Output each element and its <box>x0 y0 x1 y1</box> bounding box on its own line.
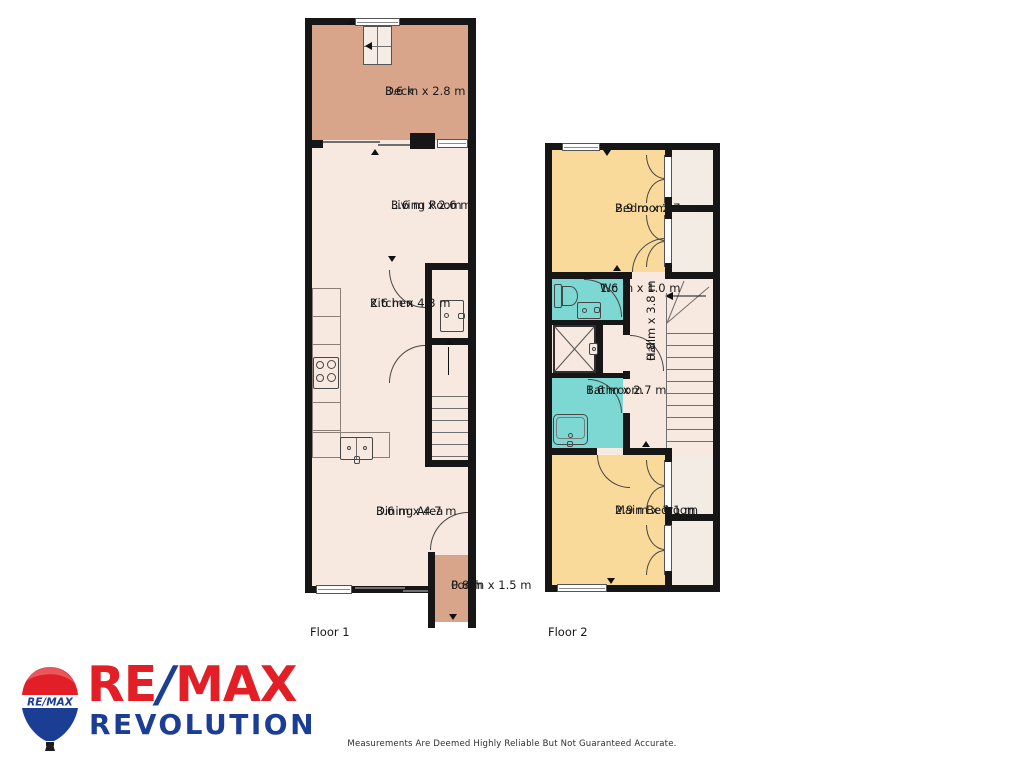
tick-mark <box>449 614 457 620</box>
room-dims: 2.9 m x 3.1 m <box>615 504 695 518</box>
wall <box>545 143 552 592</box>
wall-porch-left <box>428 552 435 628</box>
tick-mark <box>613 265 621 271</box>
sink-drain <box>347 446 351 450</box>
wall <box>545 272 632 279</box>
wall-chimney <box>410 133 435 149</box>
wall <box>665 571 672 585</box>
closet <box>672 212 713 272</box>
sliding-door <box>403 590 428 592</box>
room-dims: 2.6 m x 4.3 m <box>370 297 450 311</box>
stairs-treads <box>432 385 468 460</box>
room-dims: 0.8 m x 1.5 m <box>451 579 531 593</box>
tick-mark <box>347 19 355 25</box>
svg-text:RE/MAX: RE/MAX <box>27 697 74 709</box>
wall <box>665 150 672 157</box>
toilet-tank <box>554 284 562 308</box>
stove-burner <box>327 373 336 382</box>
closet-door-panel <box>664 215 672 267</box>
room-dims: 0.8 m x 3.8 m <box>645 281 659 361</box>
wall <box>552 320 623 325</box>
sink-drain <box>363 446 367 450</box>
brand-re: RE <box>87 656 156 713</box>
brand-max: MAX <box>175 656 296 713</box>
closet-door-panel <box>664 525 672 575</box>
tick-mark <box>388 256 396 262</box>
window <box>437 139 468 148</box>
stove-burner <box>327 360 336 369</box>
floor-2-label: Floor 2 <box>548 625 588 639</box>
wc-sink-drain <box>582 308 587 313</box>
floor-1-label: Floor 1 <box>310 625 350 639</box>
wall <box>666 272 713 279</box>
stair-direction-arrow <box>365 42 372 50</box>
sliding-door <box>355 587 405 589</box>
water-heater-dial <box>444 313 449 318</box>
stairs-treads <box>667 322 713 448</box>
stair-edge <box>666 293 667 448</box>
room-dims: 3.6 m x 2.6 m <box>391 199 471 213</box>
sliding-door <box>323 141 380 143</box>
wall <box>665 263 672 279</box>
wall <box>312 140 323 148</box>
closet <box>672 150 713 205</box>
wc-sink-tap <box>594 307 600 313</box>
closet-door-panel <box>664 155 672 203</box>
room-dims: 3.6 m x 4.7 m <box>376 505 456 519</box>
counter-line <box>313 402 340 403</box>
room-dims: 1.6 m x 1.0 m <box>600 282 680 296</box>
disclaimer-text: Measurements Are Deemed Highly Reliable … <box>0 739 1024 749</box>
wall <box>425 263 476 270</box>
wall <box>425 460 476 467</box>
water-heater-latch <box>458 313 465 319</box>
window <box>557 584 607 592</box>
room-dims: 1.6 m x 2.7 m <box>586 384 666 398</box>
shower-faucet-dial <box>592 347 596 351</box>
stove-burner <box>316 361 324 369</box>
wall <box>665 448 672 462</box>
toilet-bowl <box>562 286 578 306</box>
stove-burner <box>316 374 324 382</box>
floor-2-plan: Bedroom 2.9 m x 2.7 m Wc 1.6 m x 1.0 m B… <box>545 143 720 592</box>
brand-slash: / <box>156 656 175 713</box>
tick-mark <box>603 150 611 156</box>
tick-mark <box>642 441 650 447</box>
brand-wordmark: RE/MAX <box>87 660 297 709</box>
stair-direction-arrow <box>445 339 453 345</box>
brand-subtitle: REVOLUTION <box>89 711 316 739</box>
room-dims: 2.9 m x 2.7 m <box>615 202 695 216</box>
deck-stair-cap <box>355 18 400 26</box>
stair-arrow-stem <box>448 347 449 375</box>
wall <box>623 371 630 379</box>
closet <box>672 521 713 585</box>
bathtub-drain <box>568 433 573 438</box>
window <box>562 143 600 151</box>
counter-line <box>313 344 340 345</box>
wall <box>713 143 720 592</box>
bathtub-tap <box>567 441 573 447</box>
tick-mark <box>607 578 615 584</box>
counter-line <box>313 316 340 317</box>
wall <box>552 373 623 378</box>
wall <box>305 18 312 593</box>
tick-mark <box>371 149 379 155</box>
wall <box>468 18 476 628</box>
counter-line <box>313 430 340 431</box>
floor-plan-page: Porch 0.8 m x 1.5 m <box>0 0 1024 768</box>
wall <box>623 413 630 455</box>
window <box>316 585 352 594</box>
room-dims: 3.6 m x 2.8 m <box>385 85 465 99</box>
wall <box>545 448 597 455</box>
floor-1-plan: Porch 0.8 m x 1.5 m <box>305 18 476 628</box>
sink-tap <box>354 456 360 464</box>
